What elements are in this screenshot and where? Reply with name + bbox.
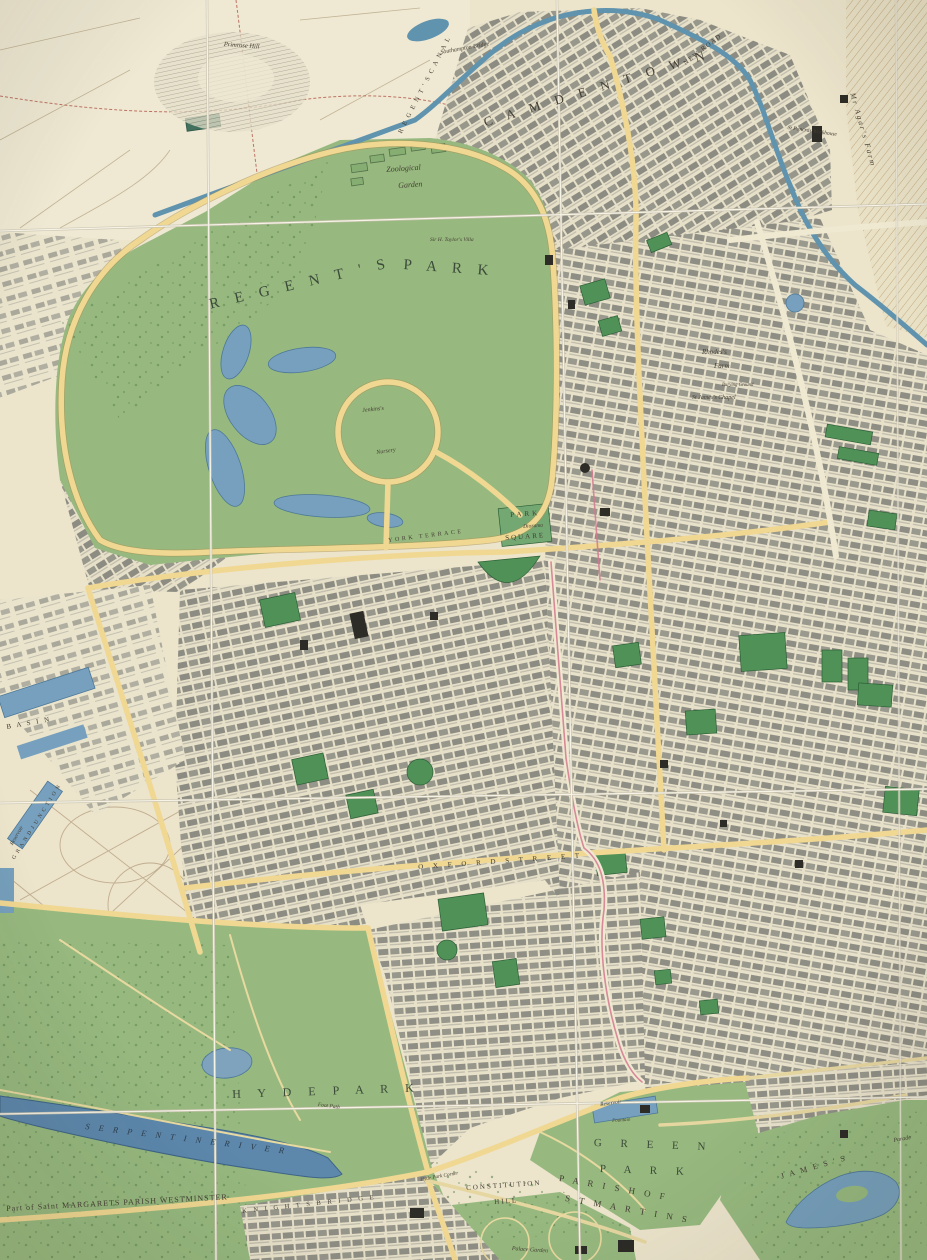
map-scan: C A M D E N T O W NNEW ROADR E G E N T '… bbox=[0, 0, 927, 1260]
map-artwork bbox=[0, 0, 927, 1260]
vignette-overlay bbox=[0, 0, 927, 1260]
